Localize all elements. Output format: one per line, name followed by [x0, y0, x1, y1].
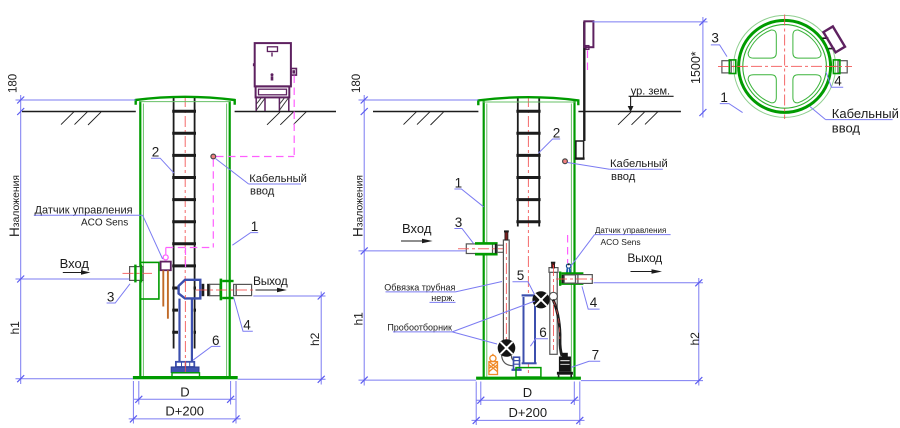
svg-text:ACO Sens: ACO Sens: [601, 237, 641, 247]
svg-text:D: D: [523, 385, 532, 400]
svg-text:1: 1: [720, 90, 728, 105]
svg-text:ACO Sens: ACO Sens: [81, 217, 128, 228]
svg-text:Выход: Выход: [253, 274, 288, 288]
svg-text:2: 2: [553, 126, 561, 141]
svg-text:2: 2: [152, 145, 160, 160]
svg-text:ввод: ввод: [611, 171, 636, 183]
svg-text:h2: h2: [308, 332, 322, 346]
svg-text:h1: h1: [352, 312, 366, 326]
svg-text:Датчик управления: Датчик управления: [595, 226, 666, 235]
svg-text:4: 4: [834, 73, 842, 88]
svg-text:1500*: 1500*: [689, 51, 703, 84]
svg-text:4: 4: [243, 318, 251, 333]
svg-text:D+200: D+200: [508, 405, 547, 420]
svg-text:180: 180: [351, 74, 363, 93]
svg-text:Кабельный: Кабельный: [610, 158, 668, 170]
svg-text:3: 3: [455, 215, 463, 230]
svg-text:4: 4: [590, 295, 598, 310]
svg-text:ур. зем.: ур. зем.: [631, 85, 670, 97]
svg-text:6: 6: [212, 333, 220, 348]
svg-text:Обвязка трубная: Обвязка трубная: [384, 283, 455, 293]
svg-text:h1: h1: [8, 321, 22, 335]
svg-text:нерж.: нерж.: [431, 293, 455, 303]
svg-text:5: 5: [517, 268, 525, 283]
svg-text:180: 180: [8, 74, 20, 93]
svg-text:Выход: Выход: [627, 251, 662, 265]
svg-text:D+200: D+200: [165, 404, 204, 419]
svg-text:6: 6: [539, 325, 547, 340]
svg-text:1: 1: [251, 219, 259, 234]
svg-text:ввод: ввод: [250, 186, 275, 198]
svg-text:D: D: [180, 384, 189, 399]
svg-text:3: 3: [711, 31, 719, 46]
svg-text:Датчик управления: Датчик управления: [35, 204, 133, 216]
svg-text:1: 1: [455, 176, 463, 191]
svg-text:Вход: Вход: [60, 256, 90, 271]
svg-text:Кабельный: Кабельный: [249, 173, 307, 185]
svg-text:Кабельный: Кабельный: [832, 106, 899, 121]
svg-text:Пробоотборник: Пробоотборник: [387, 323, 452, 333]
svg-text:3: 3: [107, 289, 115, 304]
svg-text:Вход: Вход: [402, 221, 432, 236]
svg-text:ввод: ввод: [832, 120, 861, 135]
svg-text:7: 7: [592, 347, 600, 362]
svg-text:h2: h2: [688, 332, 702, 346]
